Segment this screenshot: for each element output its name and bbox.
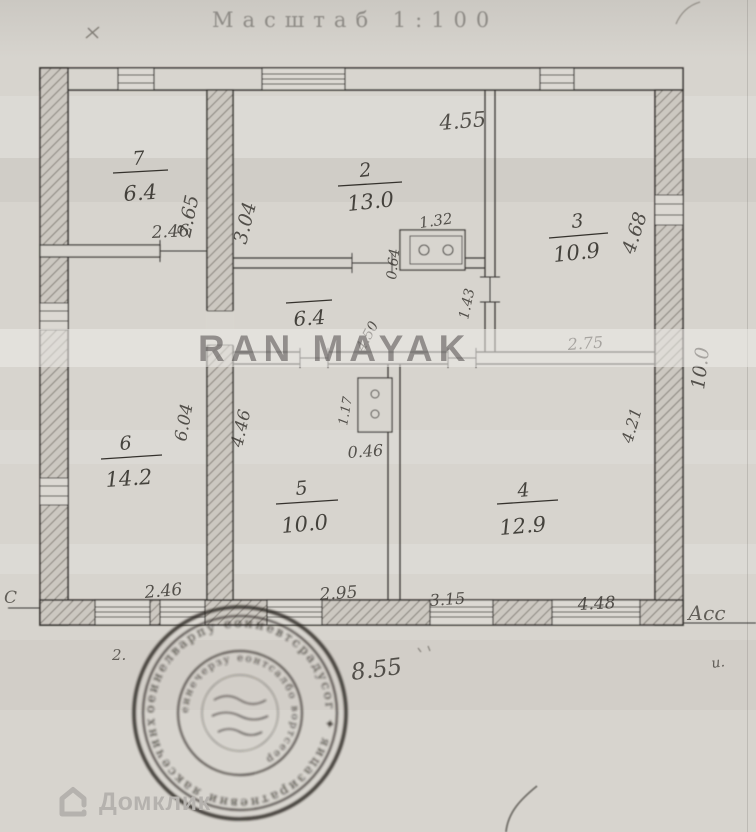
room-label-5: 5 10.0 <box>276 477 338 538</box>
dim-passage: 1.43 <box>456 287 478 321</box>
stamp-inner-ring-text: еинечерзу еонтсалбо вортсеер <box>180 653 300 766</box>
dim-bottom-1: 2.46 <box>143 580 184 603</box>
dim-bottom-2: 2.95 <box>318 582 358 605</box>
annotation-near-stamp: 2. <box>111 646 126 664</box>
watermark-text: RAN MAYAK <box>198 328 471 370</box>
wall-opening <box>40 303 68 330</box>
window <box>118 68 154 90</box>
brand-label: Домклик <box>99 788 211 817</box>
wall-opening <box>655 195 683 225</box>
svg-text:6.4: 6.4 <box>123 180 158 206</box>
svg-text:4: 4 <box>516 479 531 502</box>
room-label-4: 4 12.9 <box>497 479 558 540</box>
room-label-2: 2 13.0 <box>338 159 402 216</box>
stove-room2 <box>400 230 465 270</box>
room-label-3: 3 10.9 <box>549 210 608 267</box>
dim-stove-width: 1.32 <box>418 209 454 231</box>
svg-text:12.9: 12.9 <box>498 512 547 540</box>
dim-bottom-3: 3.15 <box>429 589 466 610</box>
house-icon <box>56 785 90 819</box>
window <box>95 600 150 625</box>
annotation-right-2: и. <box>710 654 726 672</box>
svg-text:7: 7 <box>132 147 147 170</box>
svg-text:10.9: 10.9 <box>552 238 601 267</box>
wall-opening <box>40 478 68 505</box>
scanned-floorplan-page: Масштаб 1:100 <box>0 0 756 832</box>
svg-text:6: 6 <box>119 432 133 455</box>
dim-room4-height: 4.21 <box>617 406 645 446</box>
svg-text:5: 5 <box>295 477 309 500</box>
pencil-stroke <box>506 786 537 832</box>
window <box>262 68 345 90</box>
svg-text:3: 3 <box>570 210 584 233</box>
svg-text:13.0: 13.0 <box>346 187 395 216</box>
brand-watermark: Домклик <box>56 785 211 819</box>
dim-wall-mid-height: 6.04 <box>171 402 197 443</box>
dim-stove2-height: 1.17 <box>336 395 356 427</box>
floor-plan-drawing: 7 6.4 2 13.0 3 10.9 6 14.2 5 <box>0 0 756 832</box>
dim-stove-depth: 0.64 <box>384 248 403 281</box>
pencil-mark <box>418 646 430 652</box>
dim-stove2-width: 0.46 <box>347 441 384 462</box>
dim-room2-left: 3.04 <box>230 200 262 246</box>
pencil-mark <box>676 2 700 24</box>
dim-room7-door: 2.46 <box>150 221 190 243</box>
annotation-left-edge: С <box>4 588 17 608</box>
dim-house-width: 8.55 <box>350 654 404 686</box>
hall-label: 6.4 <box>286 300 332 331</box>
stamp-center-scribble <box>212 696 268 735</box>
svg-text:14.2: 14.2 <box>105 465 153 492</box>
stove-room5 <box>358 378 392 432</box>
room-label-7: 7 6.4 <box>113 147 168 206</box>
window <box>160 600 205 625</box>
window <box>540 68 574 90</box>
dim-room3-right: 4.68 <box>618 210 652 258</box>
dim-room2-top: 4.55 <box>437 107 487 135</box>
dim-bottom-4: 4.48 <box>576 593 616 615</box>
room-label-6: 6 14.2 <box>101 432 162 492</box>
pencil-mark <box>86 27 99 38</box>
annotation-right: Асс <box>686 601 726 625</box>
svg-text:2: 2 <box>357 159 372 182</box>
svg-text:10.0: 10.0 <box>280 510 329 538</box>
